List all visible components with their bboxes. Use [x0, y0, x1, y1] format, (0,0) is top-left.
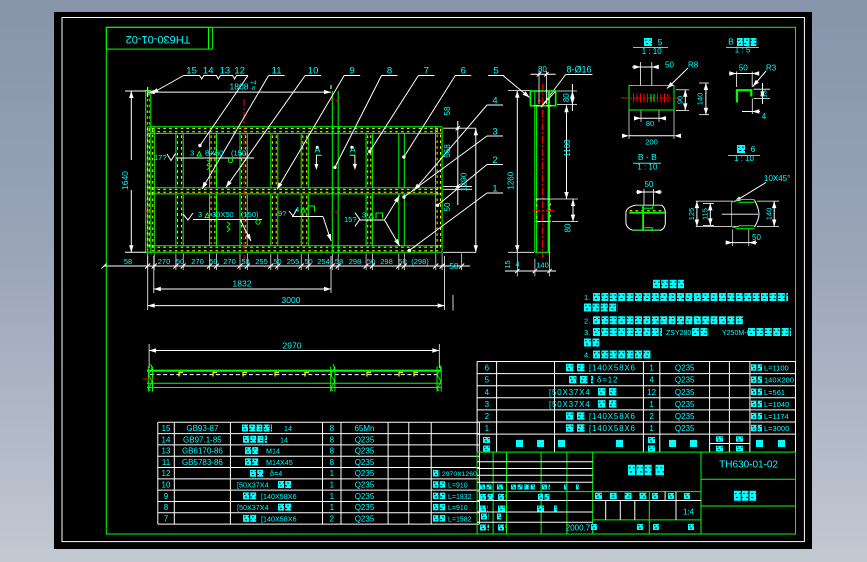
svg-text:Q235: Q235: [675, 388, 695, 397]
svg-text:2: 2: [649, 412, 654, 421]
svg-text:L=1174: L=1174: [764, 412, 789, 421]
svg-text:65Mn: 65Mn: [354, 424, 374, 433]
svg-text:1100: 1100: [563, 139, 572, 157]
svg-text:A: A: [350, 145, 356, 155]
svg-text:ZSY280.: ZSY280.: [666, 330, 693, 337]
svg-text:11: 11: [162, 458, 171, 467]
svg-text:50: 50: [645, 180, 654, 189]
svg-text:115: 115: [701, 208, 710, 220]
svg-text:2.: 2.: [584, 316, 590, 325]
svg-text:[140X58X6: [140X58X6: [589, 412, 636, 421]
svg-text:10X45°: 10X45°: [764, 174, 790, 183]
svg-text:80: 80: [564, 223, 573, 232]
svg-text:2: 2: [330, 514, 335, 523]
svg-text:8: 8: [330, 447, 335, 456]
svg-text:3: 3: [485, 400, 490, 409]
svg-text:50: 50: [739, 64, 748, 73]
svg-text:Q235: Q235: [675, 400, 695, 409]
svg-text:50: 50: [304, 257, 312, 266]
svg-text:Q235: Q235: [355, 481, 375, 490]
svg-text:R3: R3: [766, 64, 777, 73]
svg-text:(150): (150): [231, 149, 249, 158]
svg-text:[50X37X4: [50X37X4: [237, 481, 269, 490]
svg-text:3.: 3.: [584, 328, 590, 337]
svg-text:255: 255: [255, 257, 268, 266]
svg-text:125: 125: [687, 208, 696, 221]
svg-text:1:4: 1:4: [683, 508, 695, 517]
svg-text:2000.7: 2000.7: [566, 524, 591, 533]
svg-text:13: 13: [762, 90, 769, 98]
svg-text:4: 4: [762, 112, 767, 121]
svg-text:14: 14: [284, 424, 292, 433]
svg-text:1: 1: [649, 400, 654, 409]
svg-text:58: 58: [443, 106, 452, 115]
svg-text:1: 1: [330, 469, 335, 478]
svg-text:4: 4: [295, 205, 299, 214]
svg-text:9: 9: [350, 66, 355, 77]
svg-text:50: 50: [665, 61, 674, 70]
svg-text:Q235: Q235: [675, 364, 695, 373]
svg-text:50: 50: [398, 257, 406, 266]
svg-text:1: 1: [330, 492, 335, 501]
svg-text:140: 140: [765, 208, 774, 221]
svg-text:14: 14: [162, 435, 171, 444]
svg-text:Q235: Q235: [675, 424, 695, 433]
svg-text:1.: 1.: [584, 293, 590, 302]
svg-text:50: 50: [752, 233, 761, 242]
svg-text:30X50: 30X50: [212, 210, 234, 219]
svg-text:GB5783-86: GB5783-86: [182, 458, 223, 467]
svg-text:58: 58: [450, 262, 459, 271]
svg-text:B: B: [728, 37, 734, 47]
svg-text:15?: 15?: [344, 215, 357, 224]
svg-text:9?: 9?: [278, 209, 286, 218]
svg-text:3: 3: [190, 149, 194, 158]
svg-text:298: 298: [380, 257, 393, 266]
svg-text:[50X37X4: [50X37X4: [549, 400, 591, 409]
svg-text:80: 80: [538, 65, 547, 74]
svg-text:4.: 4.: [584, 351, 590, 360]
svg-text:M14: M14: [266, 447, 280, 456]
svg-text:270: 270: [158, 257, 171, 266]
svg-text:1: 1: [485, 424, 490, 433]
svg-text:50: 50: [367, 257, 375, 266]
svg-text:L=1832: L=1832: [448, 494, 472, 501]
svg-text:13: 13: [220, 66, 231, 77]
svg-text:(150): (150): [241, 210, 259, 219]
svg-text:6: 6: [751, 144, 756, 154]
svg-text:L=1040: L=1040: [764, 400, 789, 409]
svg-text:L=910: L=910: [448, 505, 468, 512]
svg-text:M14X45: M14X45: [266, 458, 293, 467]
svg-text:1: 1: [649, 424, 654, 433]
svg-text:8: 8: [387, 66, 392, 77]
svg-text:BX50: BX50: [205, 149, 223, 158]
svg-text:568: 568: [443, 144, 452, 158]
svg-text:5: 5: [485, 376, 490, 385]
svg-text:14: 14: [203, 66, 214, 77]
svg-text:14: 14: [280, 435, 288, 444]
svg-text:L=561: L=561: [764, 388, 785, 397]
svg-text:5: 5: [494, 66, 499, 77]
svg-text:10: 10: [308, 66, 319, 77]
svg-text:255: 255: [287, 257, 300, 266]
svg-text:[140X58X6: [140X58X6: [261, 514, 297, 523]
svg-text:(298): (298): [411, 257, 429, 266]
svg-text:L=1100: L=1100: [764, 364, 789, 373]
svg-text:298: 298: [349, 257, 362, 266]
svg-text:Q235: Q235: [355, 469, 375, 478]
svg-text:Y250M-6: Y250M-6: [722, 330, 751, 337]
svg-text:140: 140: [536, 261, 549, 270]
svg-text:200: 200: [645, 138, 658, 147]
svg-text:7: 7: [164, 514, 169, 523]
svg-text:GB93-87: GB93-87: [186, 424, 219, 433]
svg-text:58: 58: [124, 257, 132, 266]
svg-text:8-Ø16: 8-Ø16: [566, 65, 591, 75]
svg-text:R8: R8: [688, 61, 699, 70]
svg-text:13: 13: [162, 447, 171, 456]
svg-text:L=910: L=910: [448, 483, 468, 490]
svg-text:1 : 10: 1 : 10: [637, 163, 658, 172]
svg-text:270: 270: [223, 257, 236, 266]
svg-text:3: 3: [362, 211, 366, 220]
svg-text:8: 8: [164, 503, 169, 512]
svg-text:8: 8: [330, 435, 335, 444]
svg-text:Q235: Q235: [355, 458, 375, 467]
svg-text:58: 58: [335, 257, 343, 266]
svg-text:1 : 10: 1 : 10: [642, 47, 663, 56]
svg-text:-8: -8: [250, 86, 255, 92]
svg-text:5: 5: [658, 37, 663, 47]
svg-text:50: 50: [209, 257, 217, 266]
svg-text:90: 90: [676, 96, 685, 104]
svg-text:[50X37X4: [50X37X4: [549, 388, 591, 397]
svg-text:[50X37X4: [50X37X4: [237, 503, 269, 512]
svg-text:8: 8: [330, 424, 335, 433]
svg-text:Q235: Q235: [675, 376, 695, 385]
svg-text:12: 12: [234, 66, 245, 77]
svg-text:1260: 1260: [507, 171, 516, 189]
svg-text:GB97.1-85: GB97.1-85: [183, 435, 222, 444]
svg-text:4: 4: [649, 376, 654, 385]
svg-text:1808: 1808: [230, 82, 249, 92]
svg-text:10: 10: [162, 481, 171, 490]
svg-text:4: 4: [485, 388, 490, 397]
svg-text:[140X58X6: [140X58X6: [589, 364, 636, 373]
svg-text:2970X1260: 2970X1260: [442, 471, 477, 478]
svg-text:1640: 1640: [120, 171, 130, 190]
svg-text:δ=4: δ=4: [270, 469, 282, 478]
svg-text:2970: 2970: [283, 341, 302, 351]
svg-text:1290: 1290: [459, 172, 469, 191]
svg-text:17?: 17?: [154, 153, 167, 162]
svg-text:4: 4: [515, 260, 519, 269]
svg-text:Q235: Q235: [355, 503, 375, 512]
svg-text:270: 270: [191, 257, 204, 266]
svg-text:[140X58X6: [140X58X6: [589, 424, 636, 433]
svg-text:L=3000: L=3000: [764, 424, 789, 433]
svg-text:1: 1: [330, 503, 335, 512]
svg-text:[140X58X6: [140X58X6: [261, 492, 297, 501]
svg-text:11: 11: [272, 66, 282, 77]
svg-text:1: 1: [649, 364, 654, 373]
svg-text:58: 58: [241, 257, 249, 266]
svg-text:80: 80: [562, 93, 571, 102]
svg-text:Q235: Q235: [675, 412, 695, 421]
svg-text:50: 50: [273, 257, 281, 266]
svg-text:Q235: Q235: [355, 447, 375, 456]
svg-text:1 : 10: 1 : 10: [734, 154, 755, 163]
svg-text:3000: 3000: [282, 295, 301, 305]
svg-text:δ=12: δ=12: [597, 376, 618, 385]
svg-text:12: 12: [162, 469, 171, 478]
svg-text:2: 2: [485, 412, 490, 421]
svg-text:L=1582: L=1582: [448, 516, 472, 523]
svg-text:140: 140: [696, 93, 705, 106]
svg-text:254: 254: [317, 257, 330, 266]
svg-text:15: 15: [186, 66, 197, 77]
svg-text:80: 80: [646, 119, 654, 128]
svg-text:Q235: Q235: [355, 435, 375, 444]
svg-text:1 : 5: 1 : 5: [735, 46, 751, 55]
svg-text:TH630-01-02: TH630-01-02: [719, 460, 778, 471]
svg-text:Q235: Q235: [355, 514, 375, 523]
svg-text:1: 1: [330, 481, 335, 490]
svg-text:8: 8: [330, 458, 335, 467]
svg-text:15: 15: [162, 424, 171, 433]
svg-text:B - B: B - B: [638, 152, 657, 162]
svg-text:12: 12: [647, 388, 656, 397]
svg-text:1832: 1832: [233, 279, 252, 289]
svg-text:15: 15: [503, 260, 512, 268]
svg-text:140X200: 140X200: [764, 376, 794, 385]
svg-text:GB6170-86: GB6170-86: [182, 447, 223, 456]
svg-text:7: 7: [424, 66, 429, 77]
svg-text:50: 50: [176, 257, 184, 266]
svg-text:TH630-01-02: TH630-01-02: [126, 33, 191, 45]
svg-text:6: 6: [485, 364, 490, 373]
svg-text:3: 3: [198, 210, 202, 219]
svg-text:9: 9: [164, 492, 169, 501]
svg-text:6: 6: [461, 66, 466, 77]
svg-text:50: 50: [443, 202, 452, 211]
svg-text:Q235: Q235: [355, 492, 375, 501]
